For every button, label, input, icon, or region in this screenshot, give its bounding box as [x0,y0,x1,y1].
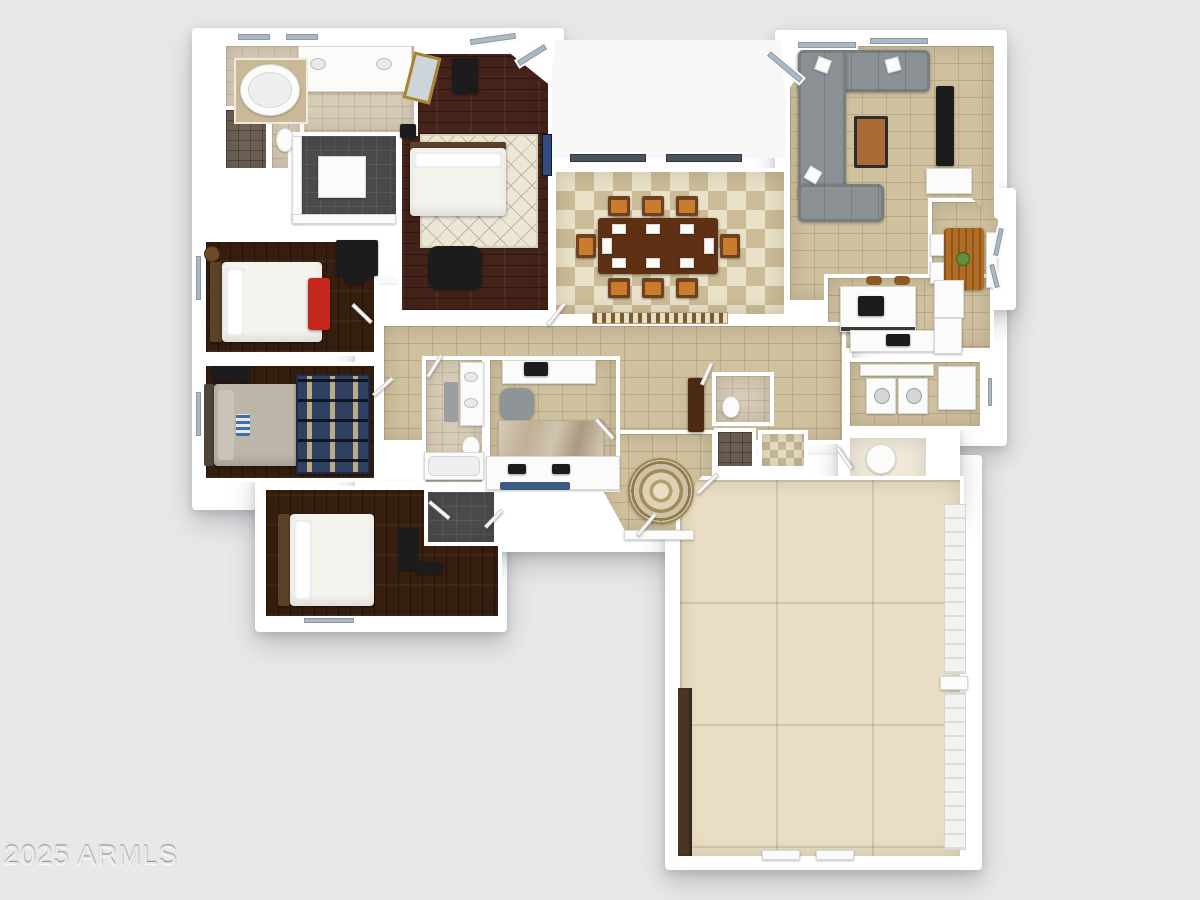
bath2-sink [464,398,478,408]
placemat [646,224,660,234]
vanity-sink-right [376,58,392,70]
bath2-mat [444,382,458,422]
coffee-table [854,116,888,168]
bar-stool [866,276,882,285]
laundry-counter [860,364,934,376]
floor-plan-render: 2025 ARMLS [0,0,1200,900]
fireplace-media-wall [936,86,954,166]
built-in-cabinet [926,168,972,194]
foyer-medallion [628,458,694,524]
dining-window [664,152,744,164]
master-pillows [414,152,502,168]
bedroom4-pillows [294,520,312,600]
desk-equipment [552,464,570,474]
bedroom4-dresser [398,528,418,570]
bedroom3-window [194,390,203,438]
garage-door [944,692,966,850]
placemat [602,238,612,254]
bedroom3-accent-pillow [236,414,250,436]
master-desk [452,58,478,94]
master-armchair [428,246,482,290]
hall-console-table [688,378,704,432]
hall-closet-floor [758,430,808,470]
dining-chair [676,278,698,298]
cooktop [886,334,910,346]
dining-chair [676,196,698,216]
desk-equipment [508,464,526,474]
island-sink [858,296,884,316]
bedroom4-media [416,562,442,574]
dining-chair [608,278,630,298]
bedroom4-window [302,616,356,625]
placemat [612,258,626,268]
laundry-window [986,376,994,408]
closet-shelf-bottom [292,214,396,224]
garage-door-pillar [940,676,968,690]
office-chair [500,388,534,420]
nook-chair [930,234,944,256]
vanity-sink-left [310,58,326,70]
sectional-chaise [798,184,884,222]
desk-mat [500,482,570,490]
dining-chair [642,278,664,298]
dining-chair [642,196,664,216]
closet-island [318,156,366,198]
master-nightstand [400,124,416,138]
powder-toilet [722,396,740,418]
bar-stool [894,276,910,285]
dryer-door [906,388,922,404]
laundry-cabinet [938,366,976,410]
nook-plant [956,252,970,266]
bedroom3-pillows [218,390,234,460]
bedroom2-desk-chair [344,266,366,284]
refrigerator [934,280,964,318]
mosaic-threshold [592,312,728,324]
powder-room-floor [712,372,774,426]
bedroom3-dresser-tv [212,366,250,382]
bedroom2-pillows [226,268,244,336]
garage-door [944,504,966,674]
water-heater [866,444,896,474]
porch-roof [545,40,790,158]
garage-step [762,850,800,860]
powder-shower-floor [714,428,756,470]
bath-window [284,32,320,42]
placemat [680,224,694,234]
placemat [646,258,660,268]
bath2-tub-basin [428,456,480,476]
bedroom2-nightstand [204,246,220,262]
dining-chair [720,234,740,258]
front-door [624,530,694,540]
bedroom2-red-bench [308,278,330,330]
closet-shelf-left [292,136,302,222]
bedroom2-headboard [210,262,222,342]
bedroom3-rug [296,374,370,474]
dining-chair [576,234,596,258]
bedroom3-headboard [204,384,214,466]
office-printer [524,362,548,376]
washer-door [874,388,890,404]
great-room-window [796,40,858,50]
bedroom4-headboard [278,514,290,606]
watermark-text: 2025 ARMLS [4,840,304,876]
placemat [612,224,626,234]
garage-floor [676,476,964,860]
bedroom2-window [194,254,203,302]
bath2-sink [464,372,478,382]
dining-window [568,152,648,164]
tub-basin [248,72,292,108]
great-room-window [868,36,930,46]
office-credenza [502,360,596,384]
bath-window [236,32,272,42]
garage-step [816,850,854,860]
placemat [704,238,714,254]
kitchen-counter-right [934,318,962,354]
garage-wall-shelf [678,688,692,856]
master-tv [542,134,552,176]
bedroom4-closet-floor [424,488,498,546]
placemat [680,258,694,268]
dining-chair [608,196,630,216]
